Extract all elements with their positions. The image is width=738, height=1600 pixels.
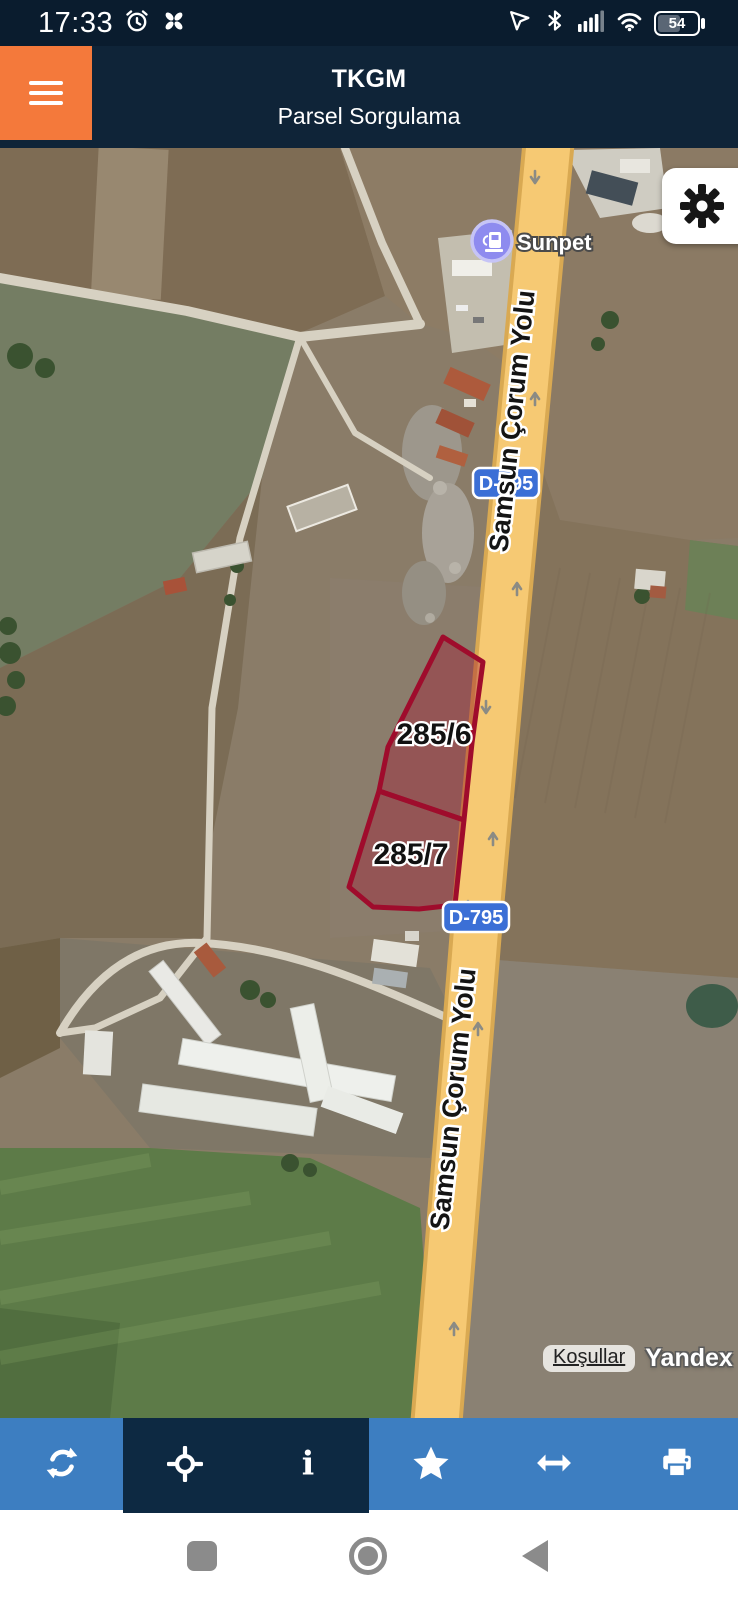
resize-icon xyxy=(536,1445,572,1484)
clover-icon xyxy=(161,8,187,39)
hamburger-icon xyxy=(29,81,63,106)
alarm-icon xyxy=(124,8,150,39)
star-icon xyxy=(412,1444,450,1485)
navigation-icon xyxy=(507,8,532,38)
page-title: TKGM Parsel Sorgulama xyxy=(0,46,738,148)
print-icon xyxy=(659,1445,695,1484)
phone-screen: 17:33 xyxy=(0,0,738,1600)
back-icon xyxy=(520,1538,550,1574)
terms-link[interactable]: Koşullar xyxy=(543,1345,635,1372)
status-left: 17:33 xyxy=(38,7,187,40)
resize-button[interactable] xyxy=(492,1418,615,1510)
pond xyxy=(686,984,738,1028)
back-button[interactable] xyxy=(520,1538,550,1579)
app-header: TKGM Parsel Sorgulama xyxy=(0,46,738,148)
terrain-fields xyxy=(0,148,738,1418)
locate-button[interactable] xyxy=(123,1418,246,1513)
wifi-icon xyxy=(616,9,643,37)
app-subtitle: Parsel Sorgulama xyxy=(278,103,461,130)
signal-icon xyxy=(578,9,605,37)
parcel-label-285-7: 285/7 xyxy=(373,838,448,871)
home-icon xyxy=(358,1546,378,1566)
menu-button[interactable] xyxy=(0,46,92,140)
map-canvas[interactable]: 285/6 285/7 D-795 D-795 Samsun Çorum Yol… xyxy=(0,148,738,1418)
print-button[interactable] xyxy=(615,1418,738,1510)
favorite-button[interactable] xyxy=(369,1418,492,1510)
refresh-icon xyxy=(44,1445,80,1484)
map-attribution: Koşullar Yandex xyxy=(543,1344,733,1373)
svg-text:D-795: D-795 xyxy=(449,907,503,929)
recents-button[interactable] xyxy=(187,1541,217,1571)
svg-text:i: i xyxy=(301,1446,313,1482)
locate-icon xyxy=(167,1446,203,1485)
app-title: TKGM xyxy=(332,65,407,94)
clock: 17:33 xyxy=(38,7,113,40)
route-badge-bottom: D-795 xyxy=(443,902,509,932)
poi-sunpet-label: Sunpet xyxy=(517,230,592,255)
parcel-label-285-6: 285/6 xyxy=(396,718,471,751)
home-button[interactable] xyxy=(349,1537,387,1575)
yandex-logo[interactable]: Yandex xyxy=(645,1344,733,1373)
status-bar: 17:33 xyxy=(0,0,738,46)
bottom-toolbar: i xyxy=(0,1418,738,1513)
status-right: 54 xyxy=(507,8,700,38)
battery-percent: 54 xyxy=(669,15,686,32)
settings-button[interactable] xyxy=(662,168,738,244)
gear-icon xyxy=(678,182,726,230)
refresh-button[interactable] xyxy=(0,1418,123,1510)
android-navbar xyxy=(0,1510,738,1600)
battery-icon: 54 xyxy=(654,11,700,36)
info-button[interactable]: i xyxy=(246,1418,369,1513)
info-icon: i xyxy=(290,1446,326,1485)
bluetooth-icon xyxy=(543,8,567,38)
